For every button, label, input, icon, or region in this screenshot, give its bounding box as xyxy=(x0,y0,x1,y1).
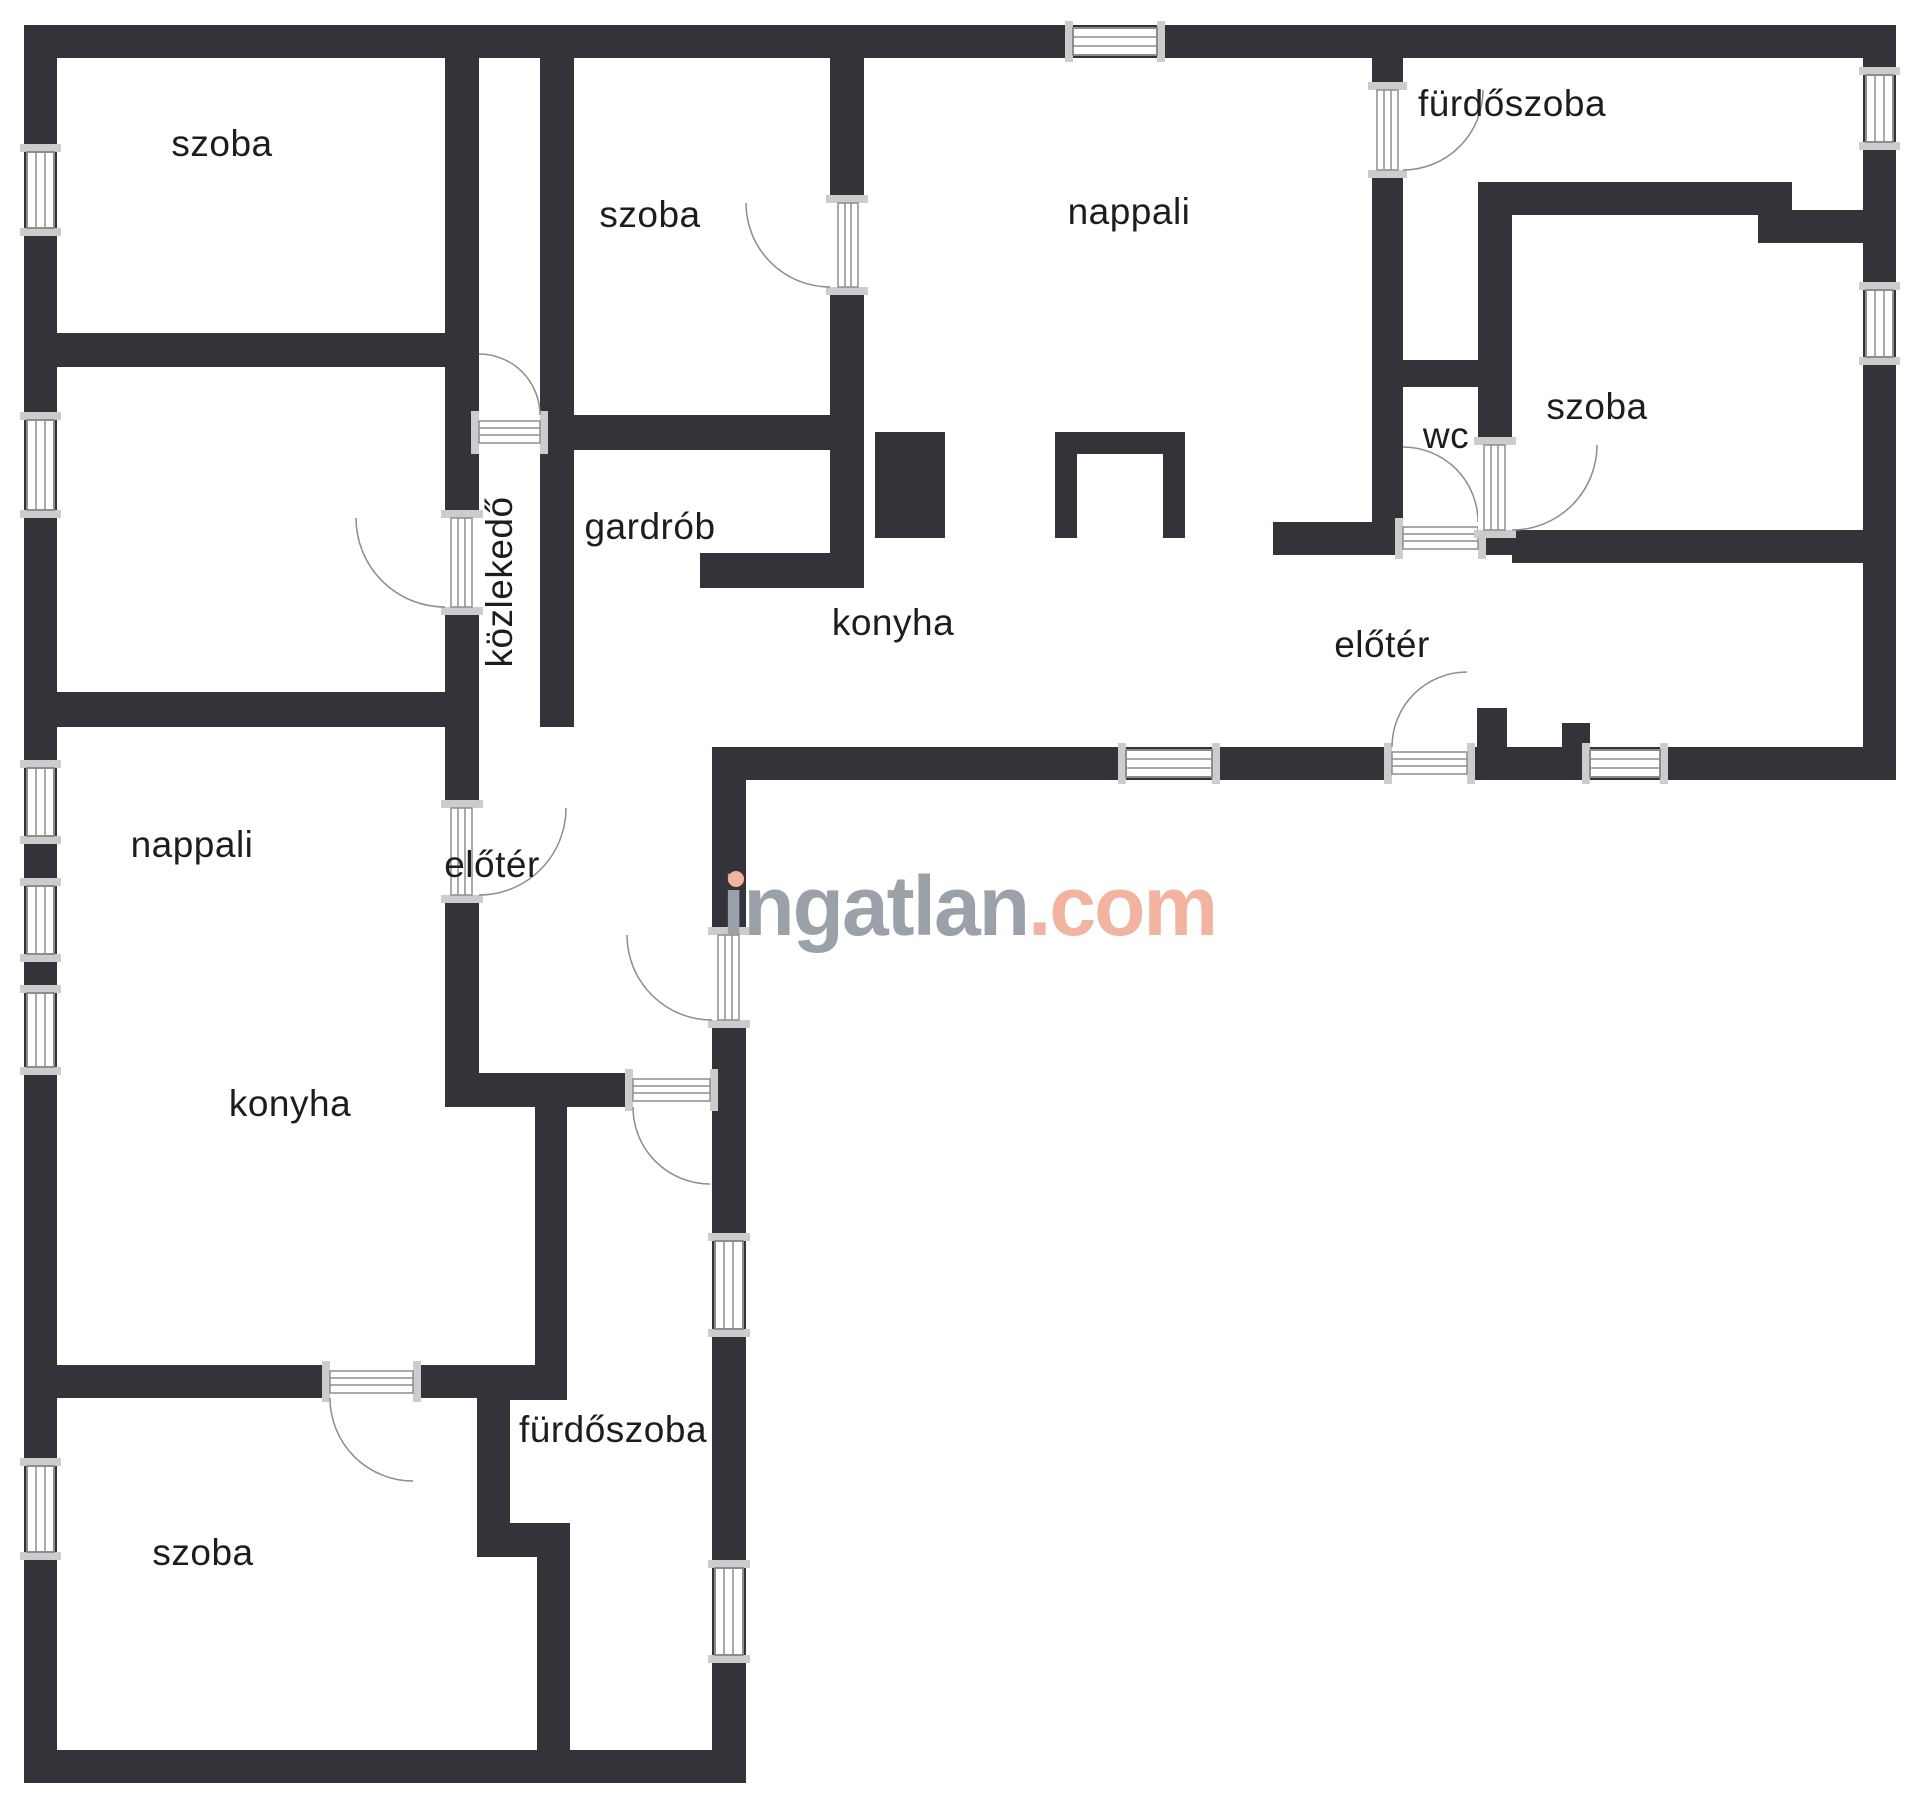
wall-segment xyxy=(535,1107,567,1400)
wall-segment xyxy=(24,1750,746,1783)
room-label-bedroom-top-middle: szoba xyxy=(599,194,700,236)
wall-segment xyxy=(574,415,864,450)
kitchen-counter-icon xyxy=(1055,432,1185,538)
room-label-bedroom-right: szoba xyxy=(1546,386,1647,428)
window-icon xyxy=(20,878,61,962)
wall-segment xyxy=(1478,182,1758,215)
window-icon xyxy=(1582,743,1668,784)
wall-segment xyxy=(24,333,479,367)
wall-segment xyxy=(445,367,479,1107)
wall-segment xyxy=(477,1365,567,1400)
room-label-bedroom-top-left: szoba xyxy=(171,123,272,165)
room-label-hallway: közlekedő xyxy=(479,496,521,667)
room-label-wardrobe: gardrób xyxy=(584,506,715,548)
door-icon xyxy=(746,195,868,295)
windows xyxy=(20,21,1900,1663)
watermark-tld: .com xyxy=(1028,859,1216,953)
window-icon xyxy=(20,1458,61,1560)
wall-segment xyxy=(1478,210,1512,445)
room-label-living-room-lower: nappali xyxy=(131,824,254,866)
kitchen-furniture xyxy=(875,432,1185,538)
wall-segment xyxy=(700,553,864,588)
door-icon xyxy=(625,1069,718,1184)
wall-segment xyxy=(24,25,1896,58)
window-icon xyxy=(1065,21,1165,62)
room-label-foyer-lower: előtér xyxy=(444,844,540,886)
window-icon xyxy=(1118,743,1220,784)
window-icon xyxy=(708,1233,750,1337)
watermark-i-dot xyxy=(728,871,744,887)
door-icon xyxy=(322,1361,421,1481)
window-icon xyxy=(1859,282,1900,365)
room-label-bedroom-bottom: szoba xyxy=(152,1532,253,1574)
wall-segment xyxy=(1477,708,1507,747)
wall-segment xyxy=(1512,530,1896,563)
room-label-bathroom-top: fürdőszoba xyxy=(1418,83,1606,125)
window-icon xyxy=(20,985,61,1075)
wall-segment xyxy=(24,692,479,727)
wall-segment xyxy=(445,58,479,333)
wall-segment xyxy=(830,58,864,588)
door-icon xyxy=(1474,437,1597,538)
window-icon xyxy=(1859,67,1900,150)
wall-segment xyxy=(712,747,1896,780)
room-label-living-room-top: nappali xyxy=(1068,191,1191,233)
watermark-brand: ingatlan xyxy=(722,859,1028,953)
window-icon xyxy=(20,144,61,236)
wall-segment xyxy=(477,1523,570,1557)
window-icon xyxy=(20,760,61,844)
window-icon xyxy=(708,1560,750,1663)
wall-segment xyxy=(537,1557,570,1750)
doors xyxy=(322,82,1597,1481)
floor-plan-canvas: szoba szoba nappali fürdőszoba wc szoba … xyxy=(0,0,1920,1811)
furniture-block-icon xyxy=(875,432,945,538)
room-label-wc: wc xyxy=(1423,415,1469,457)
wall-segment xyxy=(540,58,574,727)
door-icon xyxy=(356,510,483,615)
room-label-kitchen-lower: konyha xyxy=(229,1083,351,1125)
room-label-kitchen-top: konyha xyxy=(832,602,954,644)
door-icon xyxy=(471,354,548,454)
watermark-logo: ingatlan.com xyxy=(722,858,1216,955)
door-icon xyxy=(1384,672,1475,784)
room-label-foyer-top: előtér xyxy=(1334,624,1430,666)
window-icon xyxy=(20,412,61,518)
room-label-bathroom-lower: fürdőszoba xyxy=(519,1409,707,1451)
wall-segment xyxy=(1758,210,1896,243)
door-icon xyxy=(1395,447,1486,559)
